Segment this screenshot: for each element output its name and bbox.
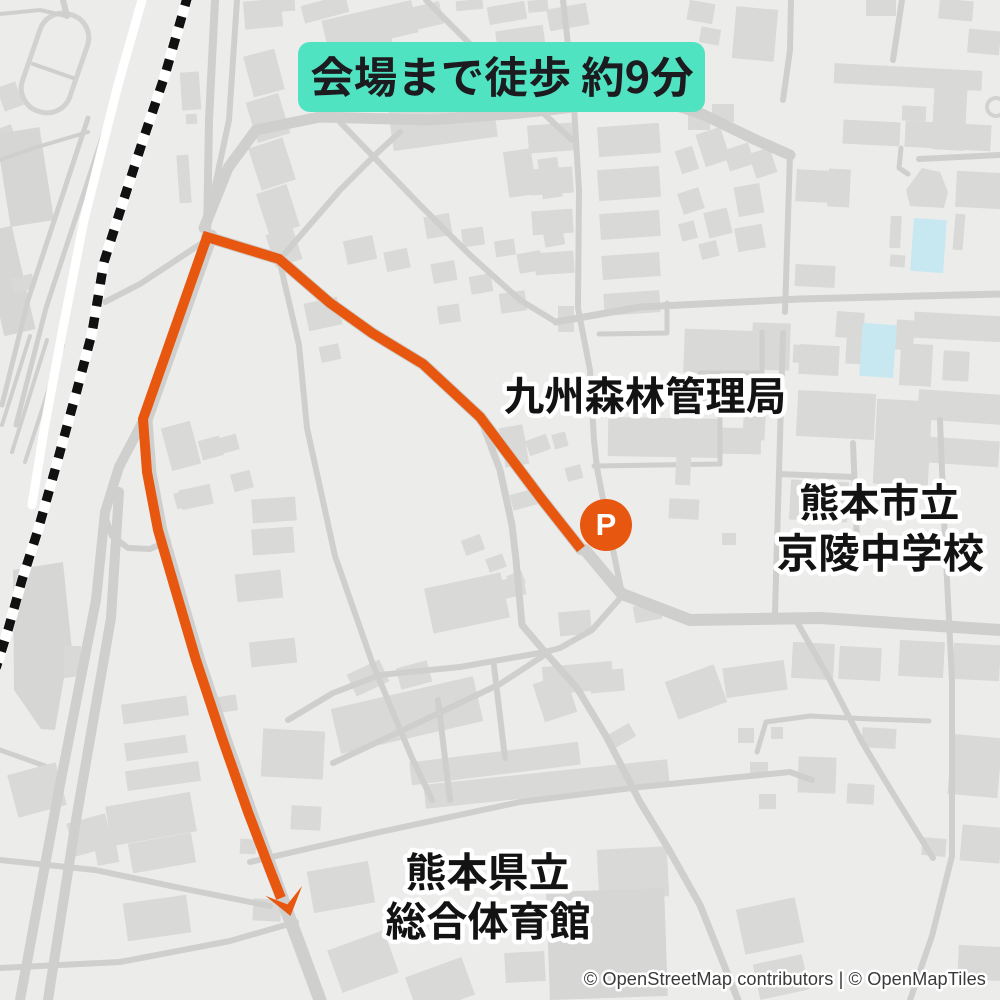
- svg-text:P: P: [596, 507, 617, 542]
- svg-text:© OpenStreetMap contributors |: © OpenStreetMap contributors | © OpenMap…: [584, 969, 986, 989]
